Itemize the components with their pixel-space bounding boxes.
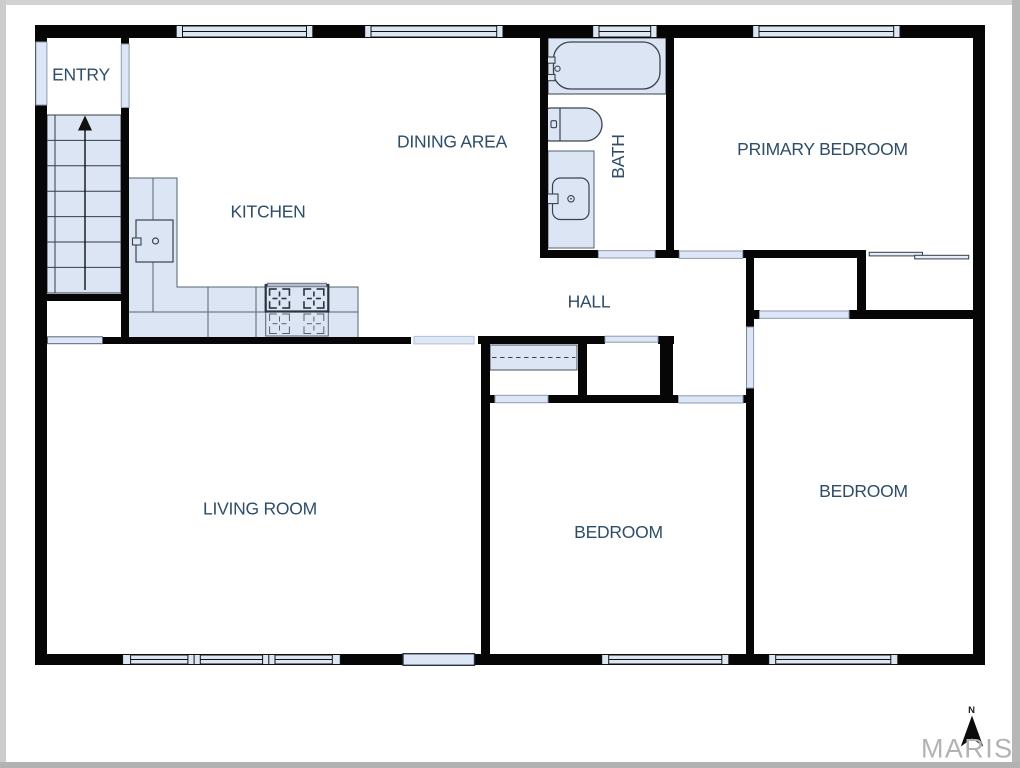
- svg-text:ENTRY: ENTRY: [52, 65, 110, 85]
- svg-text:HALL: HALL: [568, 292, 611, 312]
- svg-text:PRIMARY BEDROOM: PRIMARY BEDROOM: [737, 139, 908, 159]
- svg-text:BEDROOM: BEDROOM: [819, 481, 908, 501]
- svg-text:LIVING ROOM: LIVING ROOM: [203, 499, 317, 519]
- svg-text:BEDROOM: BEDROOM: [574, 522, 663, 542]
- svg-text:KITCHEN: KITCHEN: [230, 202, 305, 222]
- svg-text:BATH: BATH: [608, 134, 628, 178]
- svg-text:MARIS: MARIS: [921, 734, 1014, 764]
- svg-text:N: N: [968, 705, 975, 716]
- svg-text:DINING AREA: DINING AREA: [397, 132, 508, 152]
